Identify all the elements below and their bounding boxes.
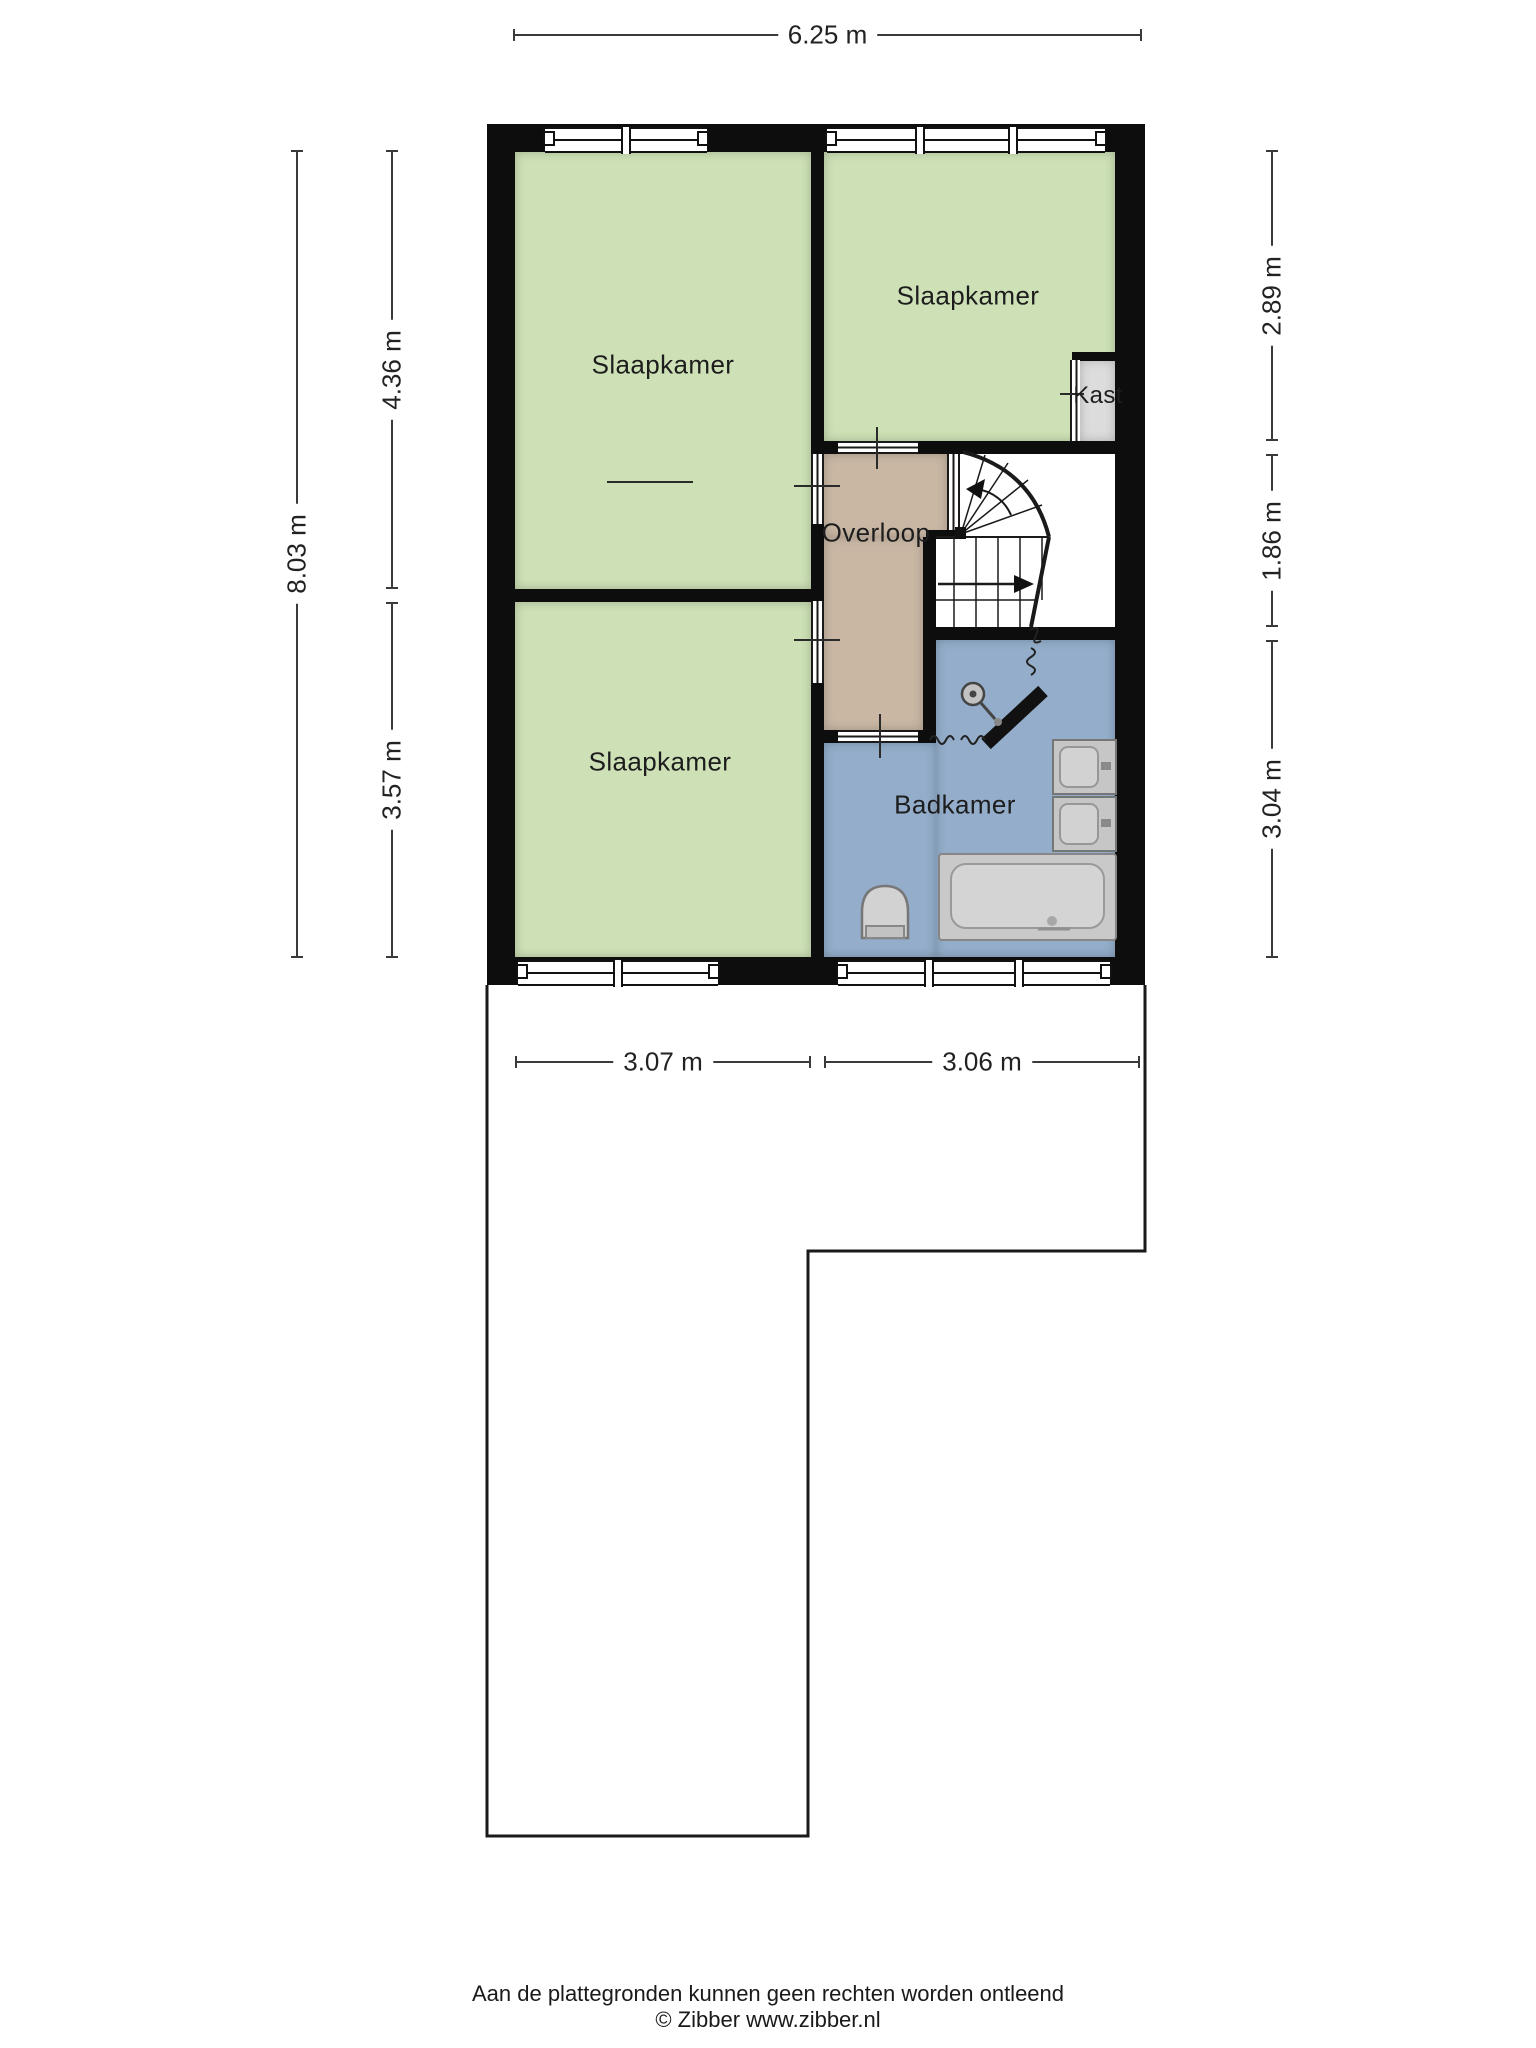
dimension-label: 4.36 m [377, 320, 408, 420]
dimension-label: 3.06 m [932, 1047, 1032, 1078]
dimension-label: 6.25 m [778, 20, 878, 51]
dimension-right-middle: 1.86 m [1262, 454, 1282, 627]
dimension-top: 6.25 m [513, 25, 1142, 45]
bathtub-faucet-icon [1038, 916, 1070, 929]
dimension-label: 3.57 m [377, 730, 408, 830]
dimension-left-lower: 3.57 m [382, 602, 402, 958]
room-label-slaapkamer-bottom-left: Slaapkamer [589, 747, 732, 778]
extension-outline [487, 985, 1145, 1836]
stairs-up-arrow-icon [966, 479, 985, 499]
dimension-label: 3.07 m [613, 1047, 713, 1078]
dimension-right-upper: 2.89 m [1262, 150, 1282, 441]
dimension-bottom-left: 3.07 m [515, 1052, 811, 1072]
room-label-slaapkamer-top-right: Slaapkamer [897, 281, 1040, 312]
staircase [936, 452, 1049, 627]
floor-plan-page: Slaapkamer Slaapkamer Slaapkamer Overloo… [0, 0, 1536, 2048]
dimension-label: 1.86 m [1257, 491, 1288, 591]
dimension-left-total: 8.03 m [287, 150, 307, 958]
plan-details [0, 0, 1536, 2048]
dimension-bottom-right: 3.06 m [824, 1052, 1140, 1072]
dimension-label: 2.89 m [1257, 246, 1288, 346]
room-label-badkamer: Badkamer [894, 790, 1016, 821]
footer-credit: © Zibber www.zibber.nl [0, 2007, 1536, 2033]
stairs-direction-arrow-icon [1014, 575, 1034, 593]
toilet-icon [862, 886, 908, 938]
dimension-label: 3.04 m [1257, 749, 1288, 849]
footer-disclaimer: Aan de plattegronden kunnen geen rechten… [0, 1981, 1536, 2007]
dimension-right-lower: 3.04 m [1262, 640, 1282, 958]
shower-icon [930, 628, 1043, 744]
room-label-slaapkamer-top-left: Slaapkamer [592, 350, 735, 381]
room-label-kast: Kast [1073, 382, 1123, 410]
dimension-label: 8.03 m [282, 504, 313, 604]
room-label-overloop: Overloop [822, 518, 931, 549]
dimension-left-upper: 4.36 m [382, 150, 402, 589]
